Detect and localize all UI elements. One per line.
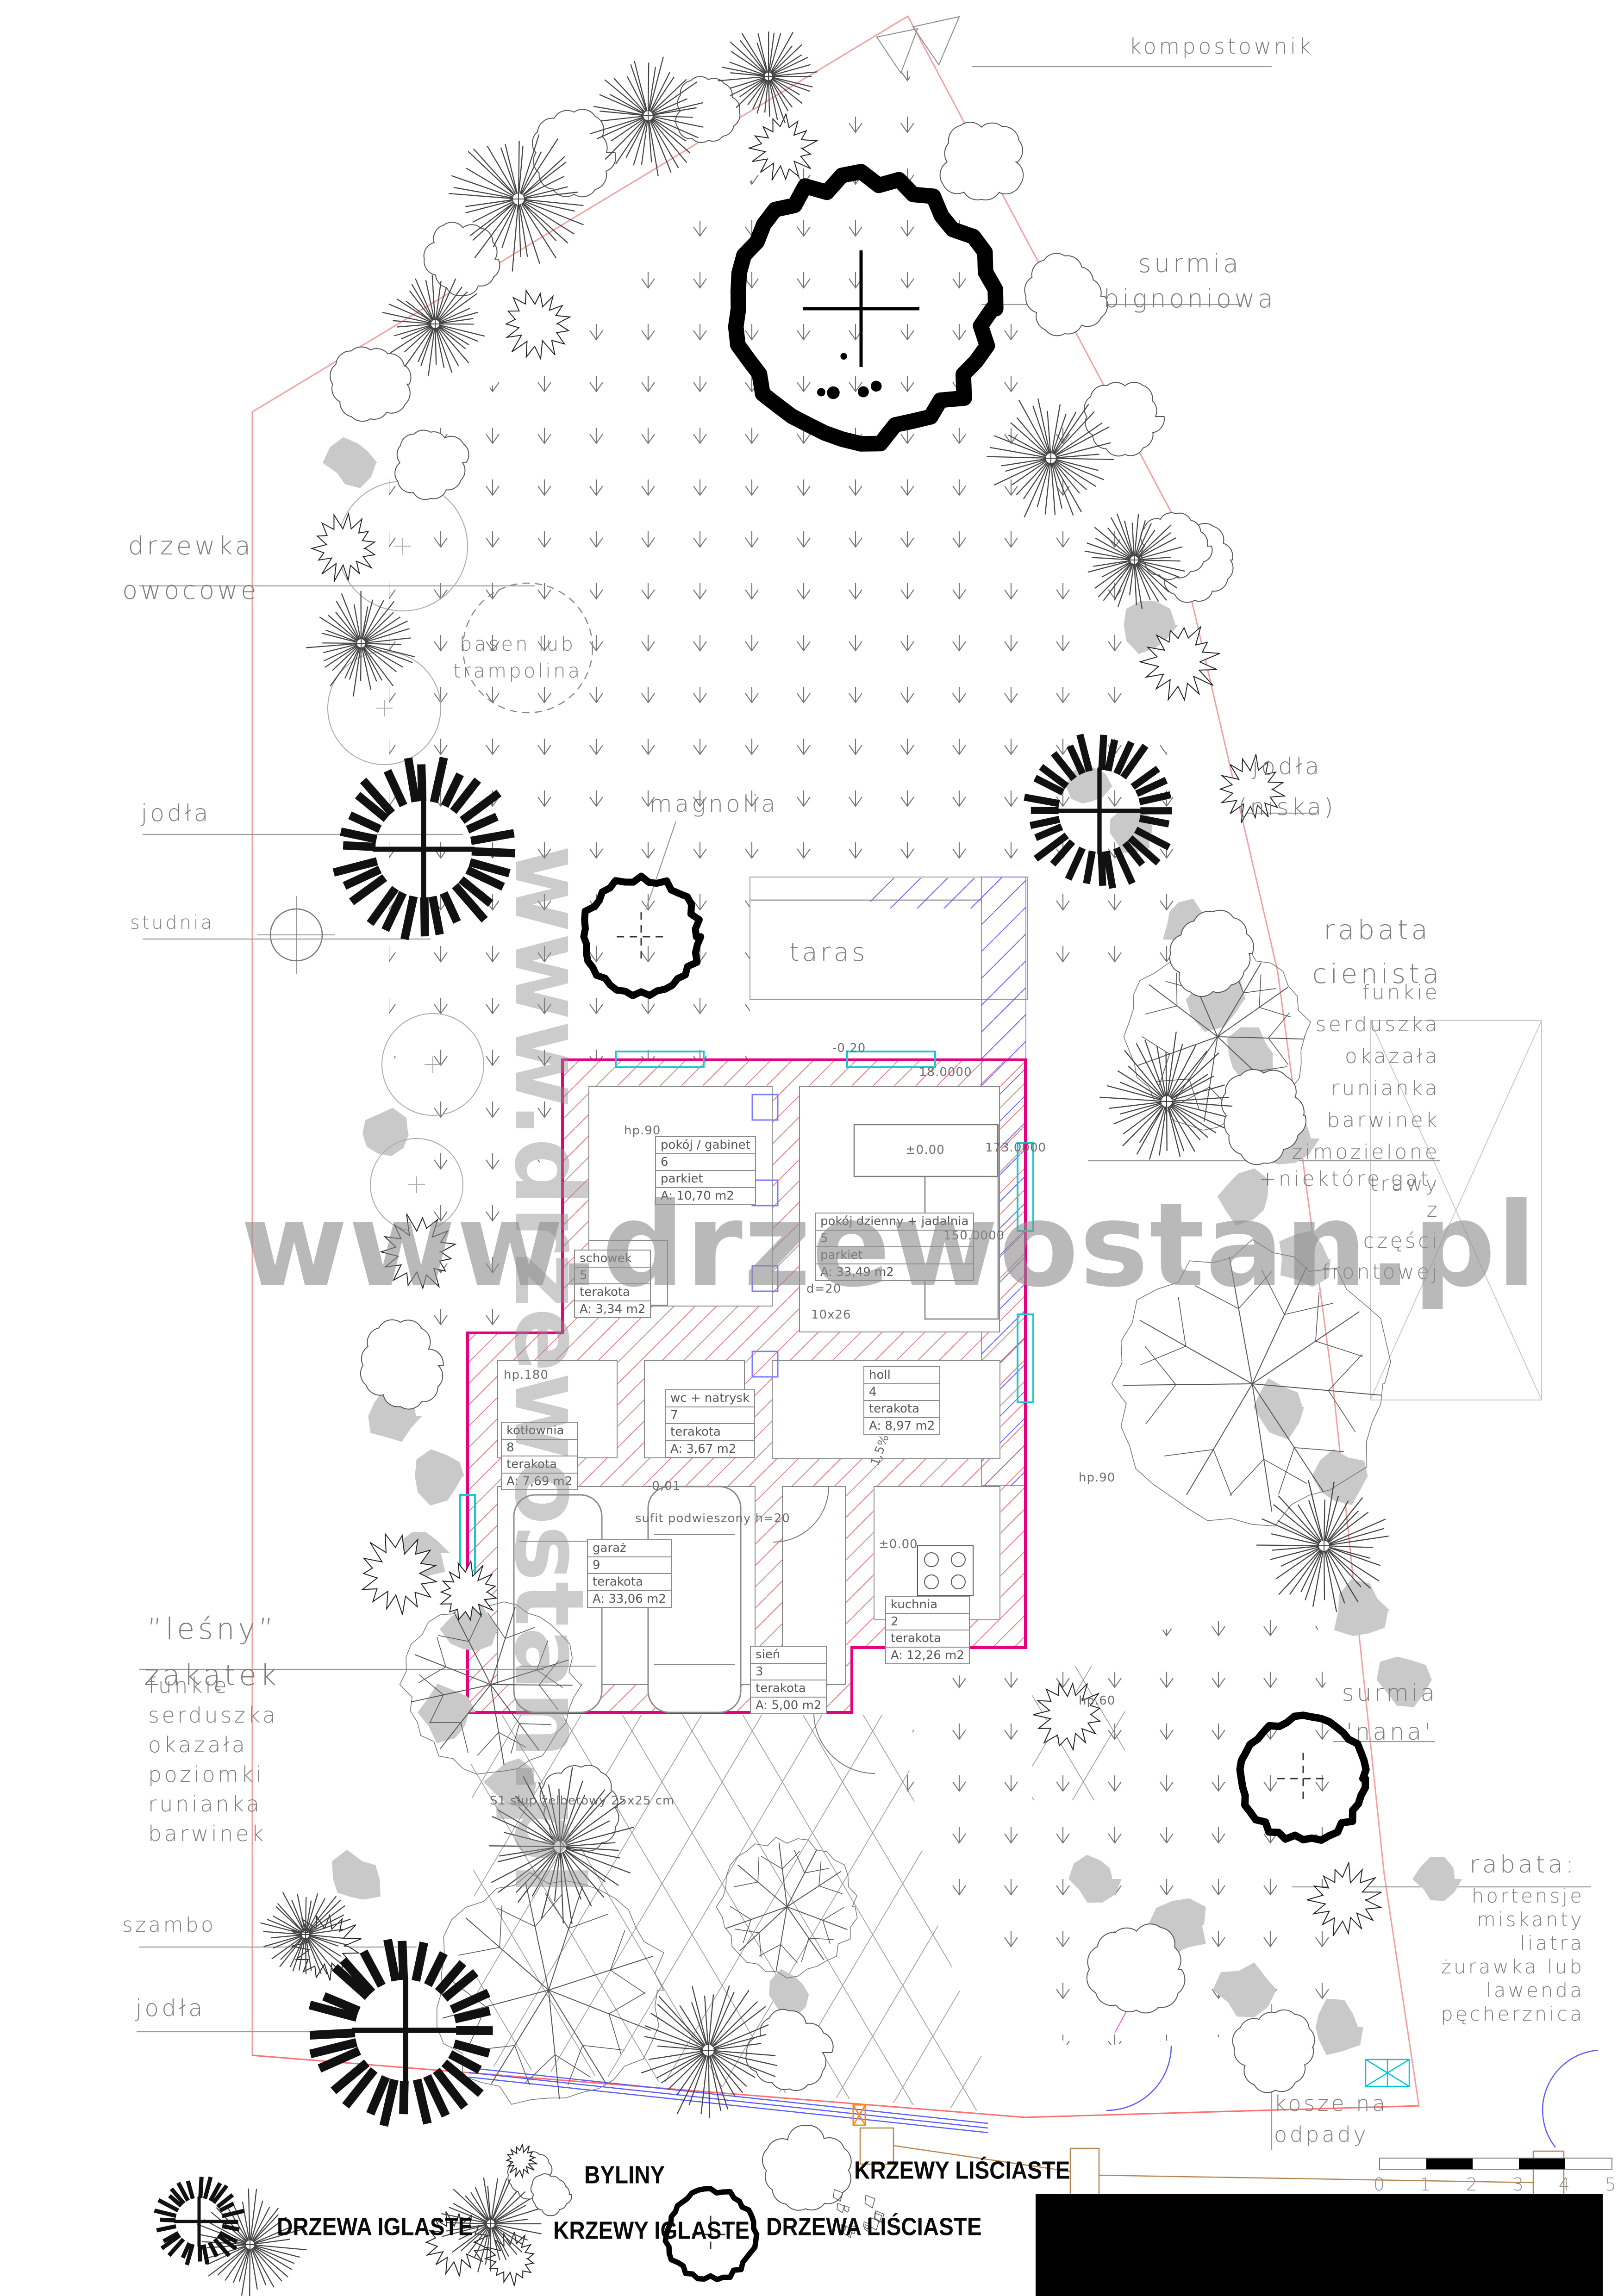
shrub-debris bbox=[865, 2195, 875, 2208]
spiky-shrub-outline bbox=[1220, 754, 1285, 823]
conifer-thin-needle bbox=[605, 80, 644, 112]
conifer-bold-needle bbox=[472, 851, 515, 853]
leafy-shrub-outline bbox=[361, 1320, 443, 1409]
conifer-thin-needle bbox=[1324, 1500, 1324, 1541]
conifer-bold-needle bbox=[160, 2220, 175, 2221]
conifer-thin-needle bbox=[501, 148, 517, 194]
tree-branch bbox=[1328, 1391, 1355, 1432]
conifer-thin-needle bbox=[1325, 1551, 1337, 1612]
leafy-shrub-outline bbox=[1024, 254, 1107, 336]
conifer-thin-needle bbox=[324, 645, 357, 661]
tree-branch bbox=[491, 1685, 573, 1685]
conifer-thin-needle bbox=[330, 647, 358, 686]
conifer-bold-needle bbox=[188, 2181, 193, 2199]
conifer-thin-needle bbox=[336, 612, 358, 641]
tree-detail-blob bbox=[858, 386, 869, 398]
neighbour-structure bbox=[1370, 1020, 1542, 1400]
shrub-debris bbox=[837, 2203, 844, 2213]
conifer-thin-needle bbox=[520, 204, 540, 263]
scale-bar-tick: 1 bbox=[1420, 2174, 1431, 2195]
tree-branch bbox=[1316, 1292, 1319, 1341]
tree-branch bbox=[1204, 1037, 1218, 1122]
car-left bbox=[514, 1495, 602, 1712]
conifer-thin-needle bbox=[616, 119, 645, 164]
conifer-thin-needle bbox=[473, 203, 514, 240]
shrub-mass-blob bbox=[1334, 1580, 1390, 1636]
shrub-debris bbox=[844, 2206, 849, 2212]
conifer-thin-needle bbox=[523, 203, 568, 243]
conifer-bold-needle bbox=[310, 2033, 355, 2035]
conifer-bold-needle bbox=[1102, 735, 1104, 770]
shrub-mass-blob bbox=[323, 437, 377, 488]
conifer-thin-needle bbox=[600, 111, 643, 115]
shrub-mass-blob bbox=[1316, 1999, 1363, 2055]
tree-branch bbox=[1140, 1320, 1252, 1384]
waste-bins-box bbox=[1366, 2060, 1409, 2086]
tree-branch bbox=[1169, 1037, 1218, 1108]
conifer-thin-needle bbox=[306, 1897, 306, 1931]
shrub-debris bbox=[843, 2226, 853, 2237]
scale-bar-tick: 2 bbox=[1466, 2174, 1477, 2195]
conifer-bold-needle bbox=[425, 897, 425, 936]
conifer-thin-needle bbox=[361, 647, 361, 681]
conifer-bold-needle bbox=[1101, 852, 1103, 886]
plan-drawing bbox=[0, 0, 1624, 2296]
conifer-thin-needle bbox=[1324, 1551, 1324, 1600]
conifer-thin-needle bbox=[736, 79, 766, 108]
leafy-shrub-outline bbox=[1084, 382, 1164, 456]
conifer-bold-needle bbox=[350, 815, 380, 829]
leafy-shrub-outline bbox=[940, 122, 1024, 200]
scale-bar-segment bbox=[1380, 2159, 1426, 2169]
conifer-thin-needle bbox=[253, 2208, 279, 2241]
tree-branch bbox=[1123, 1384, 1252, 1385]
shrub-mass-blob bbox=[1377, 1656, 1432, 1707]
conifer-bold-needle bbox=[417, 2079, 427, 2123]
scale-bar-ticks: 012345 bbox=[1379, 2170, 1612, 2193]
tree-branch bbox=[437, 1636, 446, 1667]
well-studnia bbox=[257, 896, 335, 974]
conifer-bold-needle bbox=[421, 765, 422, 801]
tree-branch bbox=[1164, 1450, 1213, 1456]
tree-branch bbox=[1142, 1036, 1170, 1054]
conifer-thin-needle bbox=[1270, 1547, 1319, 1560]
tree-branch bbox=[1213, 1450, 1231, 1496]
conifer-thin-needle bbox=[253, 2247, 288, 2277]
conifer-thin-needle bbox=[252, 2207, 269, 2241]
leafy-shrub-outline bbox=[1233, 2010, 1315, 2093]
conifer-thin-needle bbox=[768, 80, 769, 117]
leafy-shrub-outline bbox=[532, 109, 616, 197]
car-right bbox=[648, 1487, 741, 1712]
conifer-thin-needle bbox=[1329, 1536, 1389, 1545]
conifer-thin-needle bbox=[1329, 1519, 1386, 1543]
conifer-bold-needle bbox=[404, 2081, 405, 2114]
conifer-thin-needle bbox=[336, 601, 359, 640]
conifer-bold-needle bbox=[402, 1941, 404, 1980]
tree-detail-blob bbox=[871, 381, 882, 392]
tree-branch bbox=[1252, 1312, 1359, 1384]
tree-branch bbox=[1259, 1008, 1291, 1017]
scale-bar-segment bbox=[1519, 2159, 1565, 2169]
scale-bar-tick: 5 bbox=[1605, 2174, 1616, 2195]
tree-branch bbox=[1328, 1354, 1362, 1390]
conifer-thin-needle bbox=[489, 1846, 554, 1847]
shrub-mass-blob bbox=[415, 1449, 464, 1506]
conifer-thin-needle bbox=[494, 2199, 530, 2221]
conifer-bold-needle bbox=[341, 832, 376, 839]
conifer-thin-needle bbox=[771, 46, 792, 73]
conifer-bold-needle bbox=[416, 1942, 424, 1981]
conifer-thin-needle bbox=[634, 61, 647, 111]
conifer-thin-needle bbox=[650, 72, 670, 112]
conifer-thin-needle bbox=[1167, 1107, 1167, 1151]
scale-bar-segment bbox=[1565, 2159, 1612, 2169]
conifer-thin-needle bbox=[1157, 1046, 1166, 1096]
shrub-debris bbox=[869, 2217, 879, 2230]
conifer-thin-needle bbox=[1166, 1052, 1167, 1096]
shrub-mass-blob bbox=[1279, 1231, 1330, 1287]
conifer-thin-needle bbox=[391, 326, 432, 353]
leafy-shrub-outline bbox=[1087, 1924, 1185, 2013]
shrub-mass-blob bbox=[1218, 1169, 1269, 1226]
shrub-mass-blob bbox=[362, 1108, 409, 1156]
conifer-thin-needle bbox=[249, 2189, 250, 2240]
tree-branch bbox=[1140, 1346, 1186, 1365]
tree-branch bbox=[1145, 1346, 1176, 1385]
conifer-bold-needle bbox=[387, 1940, 396, 1981]
tree-detail-blob bbox=[827, 386, 839, 399]
tree-branch bbox=[1229, 1257, 1252, 1384]
conifer-bold-needle bbox=[200, 2177, 201, 2198]
tree-branch bbox=[1294, 1448, 1344, 1452]
scale-bar-segment bbox=[1426, 2159, 1473, 2169]
tree-detail-blob bbox=[817, 388, 825, 396]
conifer-thin-needle bbox=[1329, 1546, 1373, 1547]
composter-triangles bbox=[877, 17, 959, 73]
conifer-thin-needle bbox=[648, 62, 649, 111]
conifer-bold-needle bbox=[210, 2243, 217, 2257]
tree-branch bbox=[1187, 1384, 1252, 1495]
conifer-thin-needle bbox=[306, 1938, 306, 1974]
tree-branch bbox=[461, 1723, 468, 1753]
conifer-thin-needle bbox=[1305, 1550, 1322, 1600]
conifer-thin-needle bbox=[522, 203, 556, 241]
conifer-thin-needle bbox=[325, 646, 358, 667]
conifer-thin-needle bbox=[1135, 514, 1138, 556]
tree-branch bbox=[1279, 1448, 1294, 1495]
conifer-bold-needle bbox=[200, 2245, 200, 2262]
conifer-thin-needle bbox=[435, 328, 436, 365]
conifer-thin-needle bbox=[1301, 1550, 1322, 1592]
scale-bar-segments bbox=[1379, 2158, 1612, 2170]
conifer-thin-needle bbox=[494, 2225, 541, 2234]
conifer-bold-needle bbox=[222, 2211, 244, 2216]
conifer-bold-needle bbox=[205, 2177, 211, 2199]
conifer-thin-needle bbox=[1272, 1546, 1319, 1550]
leafy-shrub-outline bbox=[424, 222, 500, 296]
tree-branch bbox=[1316, 1341, 1363, 1356]
tree-branch bbox=[1262, 1270, 1285, 1314]
leafy-shrub-outline bbox=[330, 347, 411, 422]
shrub-mass-blob bbox=[1412, 1857, 1462, 1901]
shrub-mass-blob bbox=[1312, 1449, 1368, 1505]
conifer-thin-needle bbox=[397, 299, 432, 322]
conifer-thin-needle bbox=[322, 643, 357, 643]
conifer-thin-needle bbox=[1256, 1545, 1319, 1545]
shrub-mass-blob bbox=[332, 1850, 381, 1900]
conifer-thin-needle bbox=[605, 119, 645, 159]
scale-bar-tick: 0 bbox=[1374, 2174, 1385, 2195]
tree-branch bbox=[1195, 1286, 1239, 1309]
scale-bar-segment bbox=[1473, 2159, 1519, 2169]
title-block-blackout bbox=[1036, 2194, 1603, 2296]
conifer-bold-needle bbox=[156, 2226, 176, 2230]
conifer-thin-needle bbox=[363, 647, 393, 686]
shrub-debris bbox=[875, 2211, 884, 2222]
conifer-bold-needle bbox=[343, 846, 375, 847]
conifer-thin-needle bbox=[1325, 1496, 1338, 1541]
conifer-thin-needle bbox=[254, 2246, 294, 2264]
conifer-thin-needle bbox=[1329, 1548, 1380, 1566]
conifer-bold-needle bbox=[222, 2226, 239, 2229]
tree-detail-blob bbox=[840, 353, 847, 360]
scale-bar-tick: 3 bbox=[1512, 2174, 1524, 2195]
conifer-thin-needle bbox=[474, 149, 515, 195]
garden-plan-page: kompostowniksurmia bignoniowadrzewka owo… bbox=[0, 0, 1624, 2296]
conifer-thin-needle bbox=[1170, 1051, 1207, 1097]
leafy-shrub-outline bbox=[762, 2125, 851, 2210]
conifer-thin-needle bbox=[1274, 1505, 1320, 1543]
tree-branch bbox=[1264, 1459, 1307, 1484]
conifer-thin-needle bbox=[1329, 1529, 1384, 1544]
tree-branch bbox=[1285, 1303, 1333, 1314]
tree-branch bbox=[1145, 1006, 1177, 1014]
tree-branch bbox=[1146, 1385, 1176, 1424]
scale-bar-tick: 4 bbox=[1559, 2174, 1570, 2195]
conifer-bold-needle bbox=[155, 2210, 176, 2215]
conifer-thin-needle bbox=[250, 2249, 250, 2296]
tree-branch bbox=[1176, 973, 1177, 1006]
tree-branch bbox=[1230, 1459, 1264, 1495]
conifer-thin-needle bbox=[415, 279, 433, 320]
tree-branch bbox=[1239, 1272, 1272, 1309]
stove bbox=[918, 1546, 973, 1596]
scale-bar: 012345 bbox=[1379, 2158, 1612, 2193]
tree-branch bbox=[1178, 1297, 1186, 1346]
